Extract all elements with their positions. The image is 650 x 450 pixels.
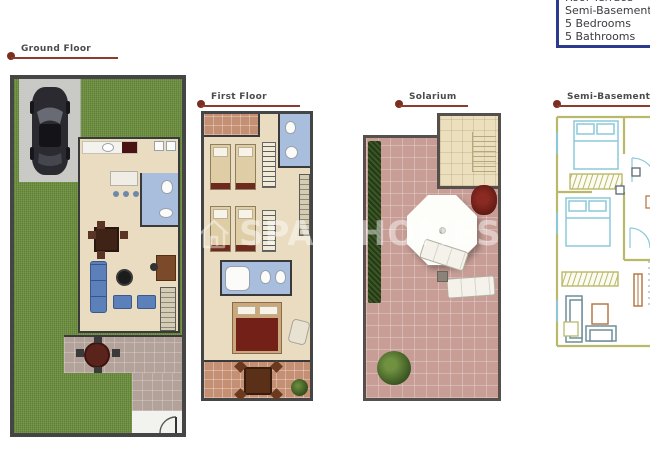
plant: [291, 379, 308, 396]
dining-table: [244, 367, 272, 395]
coffee-table: [116, 269, 133, 286]
semi-basement-label: Semi-Basement: [554, 92, 650, 110]
info-bedrooms: 5 Bedrooms: [565, 17, 650, 30]
door-swing-icon: [132, 411, 182, 433]
armchair: [287, 318, 310, 346]
desk-chair: [150, 263, 158, 271]
wardrobe-hatch: [562, 272, 618, 286]
first-floor-label: First Floor: [198, 92, 300, 110]
solarium-plan: [363, 113, 501, 401]
label-underline: [557, 105, 650, 107]
balcony: [204, 114, 260, 137]
chair: [120, 231, 128, 239]
bar-stool: [113, 191, 119, 197]
terrace: [64, 335, 182, 373]
appliance: [154, 141, 164, 151]
chair: [270, 388, 283, 401]
solarium-label: Solarium: [396, 92, 468, 110]
semi-basement-drawing: [548, 110, 650, 356]
stairs-and-shelf: [634, 196, 650, 306]
watermark-house-icon: [196, 216, 232, 252]
info-bathrooms: 5 Bathrooms: [565, 30, 650, 43]
property-info-box: Roof Terrace Semi-Basement 5 Bedrooms 5 …: [556, 0, 650, 48]
bathroom: [278, 114, 310, 168]
bar-stool: [133, 191, 139, 197]
pillow: [237, 306, 256, 315]
registered-mark: ®: [509, 228, 521, 241]
label-underline: [399, 105, 468, 107]
bathroom: [220, 260, 292, 296]
wardrobe: [262, 142, 276, 188]
watermark: SPAINHOMES®: [196, 214, 521, 254]
toilet: [285, 121, 296, 134]
garden-table: [84, 342, 110, 368]
bed-blanket: [236, 318, 278, 351]
stair-treads: [472, 132, 496, 172]
bar-stool: [123, 191, 129, 197]
chair: [97, 221, 105, 229]
stairwell-area: [437, 113, 501, 189]
chair: [112, 349, 120, 357]
desk: [156, 255, 176, 281]
single-bed: [210, 144, 231, 190]
dining-table: [94, 227, 119, 252]
first-floor-plan: [201, 111, 313, 401]
staircase: [160, 287, 176, 331]
chair: [76, 349, 84, 357]
car-top-view: [29, 85, 71, 177]
entry-path: [132, 411, 182, 433]
terrace: [204, 360, 310, 398]
semi-basement-plan: [548, 110, 650, 362]
solarium-label-text: Solarium: [409, 92, 468, 102]
single-bed: [235, 144, 256, 190]
bed-outline: [574, 121, 618, 169]
red-plant: [471, 185, 497, 215]
bed-outline: [566, 198, 610, 246]
watermark-text: SPAINHOMES: [239, 214, 502, 254]
info-semi-basement: Semi-Basement: [565, 4, 650, 17]
bathroom: [140, 173, 178, 227]
first-floor-label-text: First Floor: [211, 92, 300, 102]
bidet: [275, 270, 286, 284]
wardrobe-hatch: [570, 174, 622, 189]
chair: [88, 231, 96, 239]
toilet: [260, 270, 271, 284]
stove: [122, 142, 137, 153]
double-bed: [232, 302, 282, 354]
ground-floor-label-text: Ground Floor: [21, 44, 118, 54]
chair: [94, 337, 102, 343]
chair: [270, 360, 283, 373]
bush: [377, 351, 411, 385]
sun-lounger: [446, 275, 495, 298]
bathtub: [225, 266, 250, 291]
ottoman: [137, 295, 156, 309]
pillow: [259, 306, 278, 315]
chair: [94, 367, 102, 373]
kitchen-sink: [102, 143, 114, 152]
kitchen-island: [110, 171, 138, 186]
ground-floor-label: Ground Floor: [8, 44, 118, 62]
table-outline: [592, 304, 608, 324]
side-table: [437, 271, 448, 282]
toilet: [161, 180, 173, 194]
washbasin: [159, 208, 173, 218]
semi-basement-label-text: Semi-Basement: [567, 92, 650, 102]
terrace-walkway: [132, 373, 182, 411]
label-underline: [201, 105, 300, 107]
ground-floor-plan: [10, 75, 186, 437]
label-underline: [11, 57, 118, 59]
cabinet-outline: [564, 322, 578, 336]
washbasin: [285, 146, 298, 159]
ottoman: [113, 295, 132, 309]
chair: [97, 251, 105, 259]
appliance: [166, 141, 176, 151]
sofa: [90, 261, 107, 313]
house-interior: [78, 137, 180, 333]
floor-plan-sheet: Roof Terrace Semi-Basement 5 Bedrooms 5 …: [0, 0, 650, 450]
